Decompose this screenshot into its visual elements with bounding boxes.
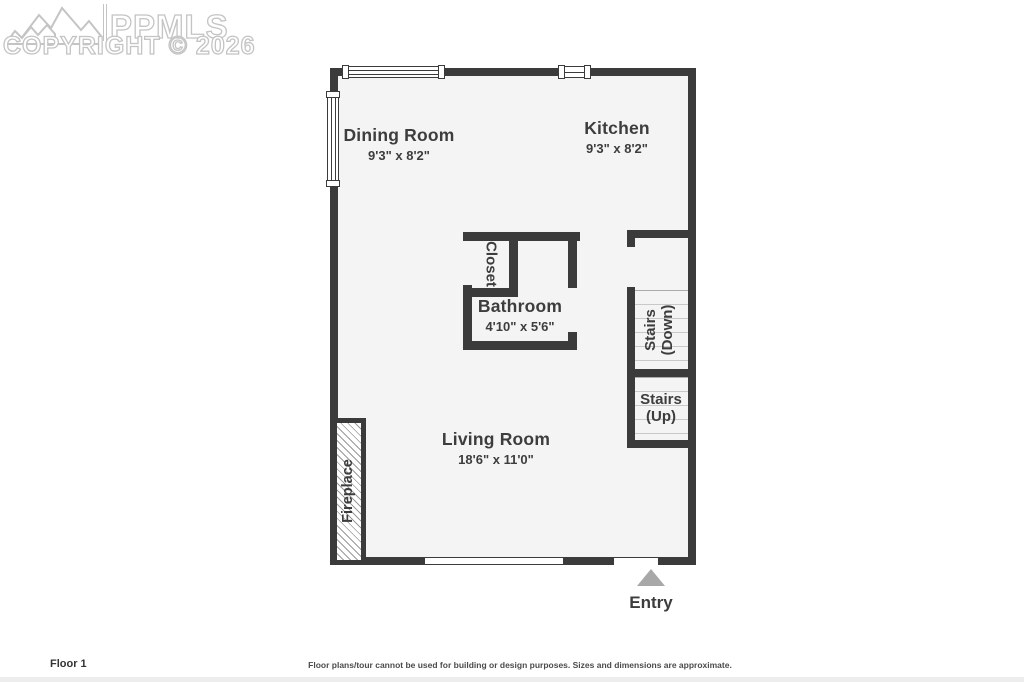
stairs-wall-top bbox=[627, 230, 696, 238]
living-room-dims: 18'6" x 11'0" bbox=[442, 452, 550, 467]
floor-selector-label[interactable]: Floor 1 bbox=[50, 658, 87, 670]
kitchen-label: Kitchen 9'3" x 8'2" bbox=[584, 118, 650, 156]
window-dining-left bbox=[327, 92, 339, 186]
closet-name: Closet bbox=[483, 241, 500, 287]
window-living-bottom bbox=[425, 557, 563, 565]
kitchen-name: Kitchen bbox=[584, 118, 650, 139]
entry-label: Entry bbox=[629, 593, 672, 613]
floor-plan-canvas: PPMLS COPYRIGHT © 2026 D bbox=[0, 0, 1024, 682]
entry-arrow-icon bbox=[637, 569, 665, 586]
dining-room-dims: 9'3" x 8'2" bbox=[343, 148, 454, 163]
fireplace-label: Fireplace bbox=[340, 459, 356, 523]
window-dining-top bbox=[343, 66, 444, 78]
dining-room-name: Dining Room bbox=[343, 125, 454, 146]
bottom-strip bbox=[0, 677, 1024, 682]
stairs-down-label: Stairs (Down) bbox=[642, 305, 677, 356]
kitchen-dims: 9'3" x 8'2" bbox=[584, 141, 650, 156]
disclaimer-text: Floor plans/tour cannot be used for buil… bbox=[308, 660, 732, 670]
stairs-wall-left-lower bbox=[627, 287, 635, 448]
bathroom-name: Bathroom bbox=[478, 296, 562, 317]
stairs-wall-middle bbox=[627, 369, 696, 377]
living-room-label: Living Room 18'6" x 11'0" bbox=[442, 429, 550, 467]
stairs-down-line2: (Down) bbox=[659, 305, 676, 356]
stairs-wall-bottom bbox=[627, 440, 696, 448]
window-kitchen-top bbox=[559, 66, 590, 78]
bathroom-dims: 4'10" x 5'6" bbox=[478, 319, 562, 334]
stairs-up-line2: (Up) bbox=[640, 408, 682, 425]
stairs-up-line1: Stairs bbox=[640, 391, 682, 408]
stairs-up-label: Stairs (Up) bbox=[640, 391, 682, 426]
bathroom-wall-right-upper bbox=[568, 232, 577, 288]
bathroom-wall-right-lower bbox=[568, 332, 577, 350]
dining-room-label: Dining Room 9'3" x 8'2" bbox=[343, 125, 454, 163]
living-room-name: Living Room bbox=[442, 429, 550, 450]
bathroom-wall-top bbox=[463, 232, 580, 241]
bathroom-wall-bottom bbox=[463, 341, 577, 350]
watermark-copyright: COPYRIGHT © 2026 bbox=[3, 32, 256, 61]
stairs-wall-left-upper bbox=[627, 230, 635, 247]
fireplace-name: Fireplace bbox=[340, 459, 356, 523]
exterior-wall-right bbox=[688, 68, 696, 565]
entry-door-opening bbox=[614, 557, 658, 565]
bathroom-label: Bathroom 4'10" x 5'6" bbox=[478, 296, 562, 334]
closet-label: Closet bbox=[483, 241, 500, 287]
stairs-down-line1: Stairs bbox=[642, 305, 659, 356]
